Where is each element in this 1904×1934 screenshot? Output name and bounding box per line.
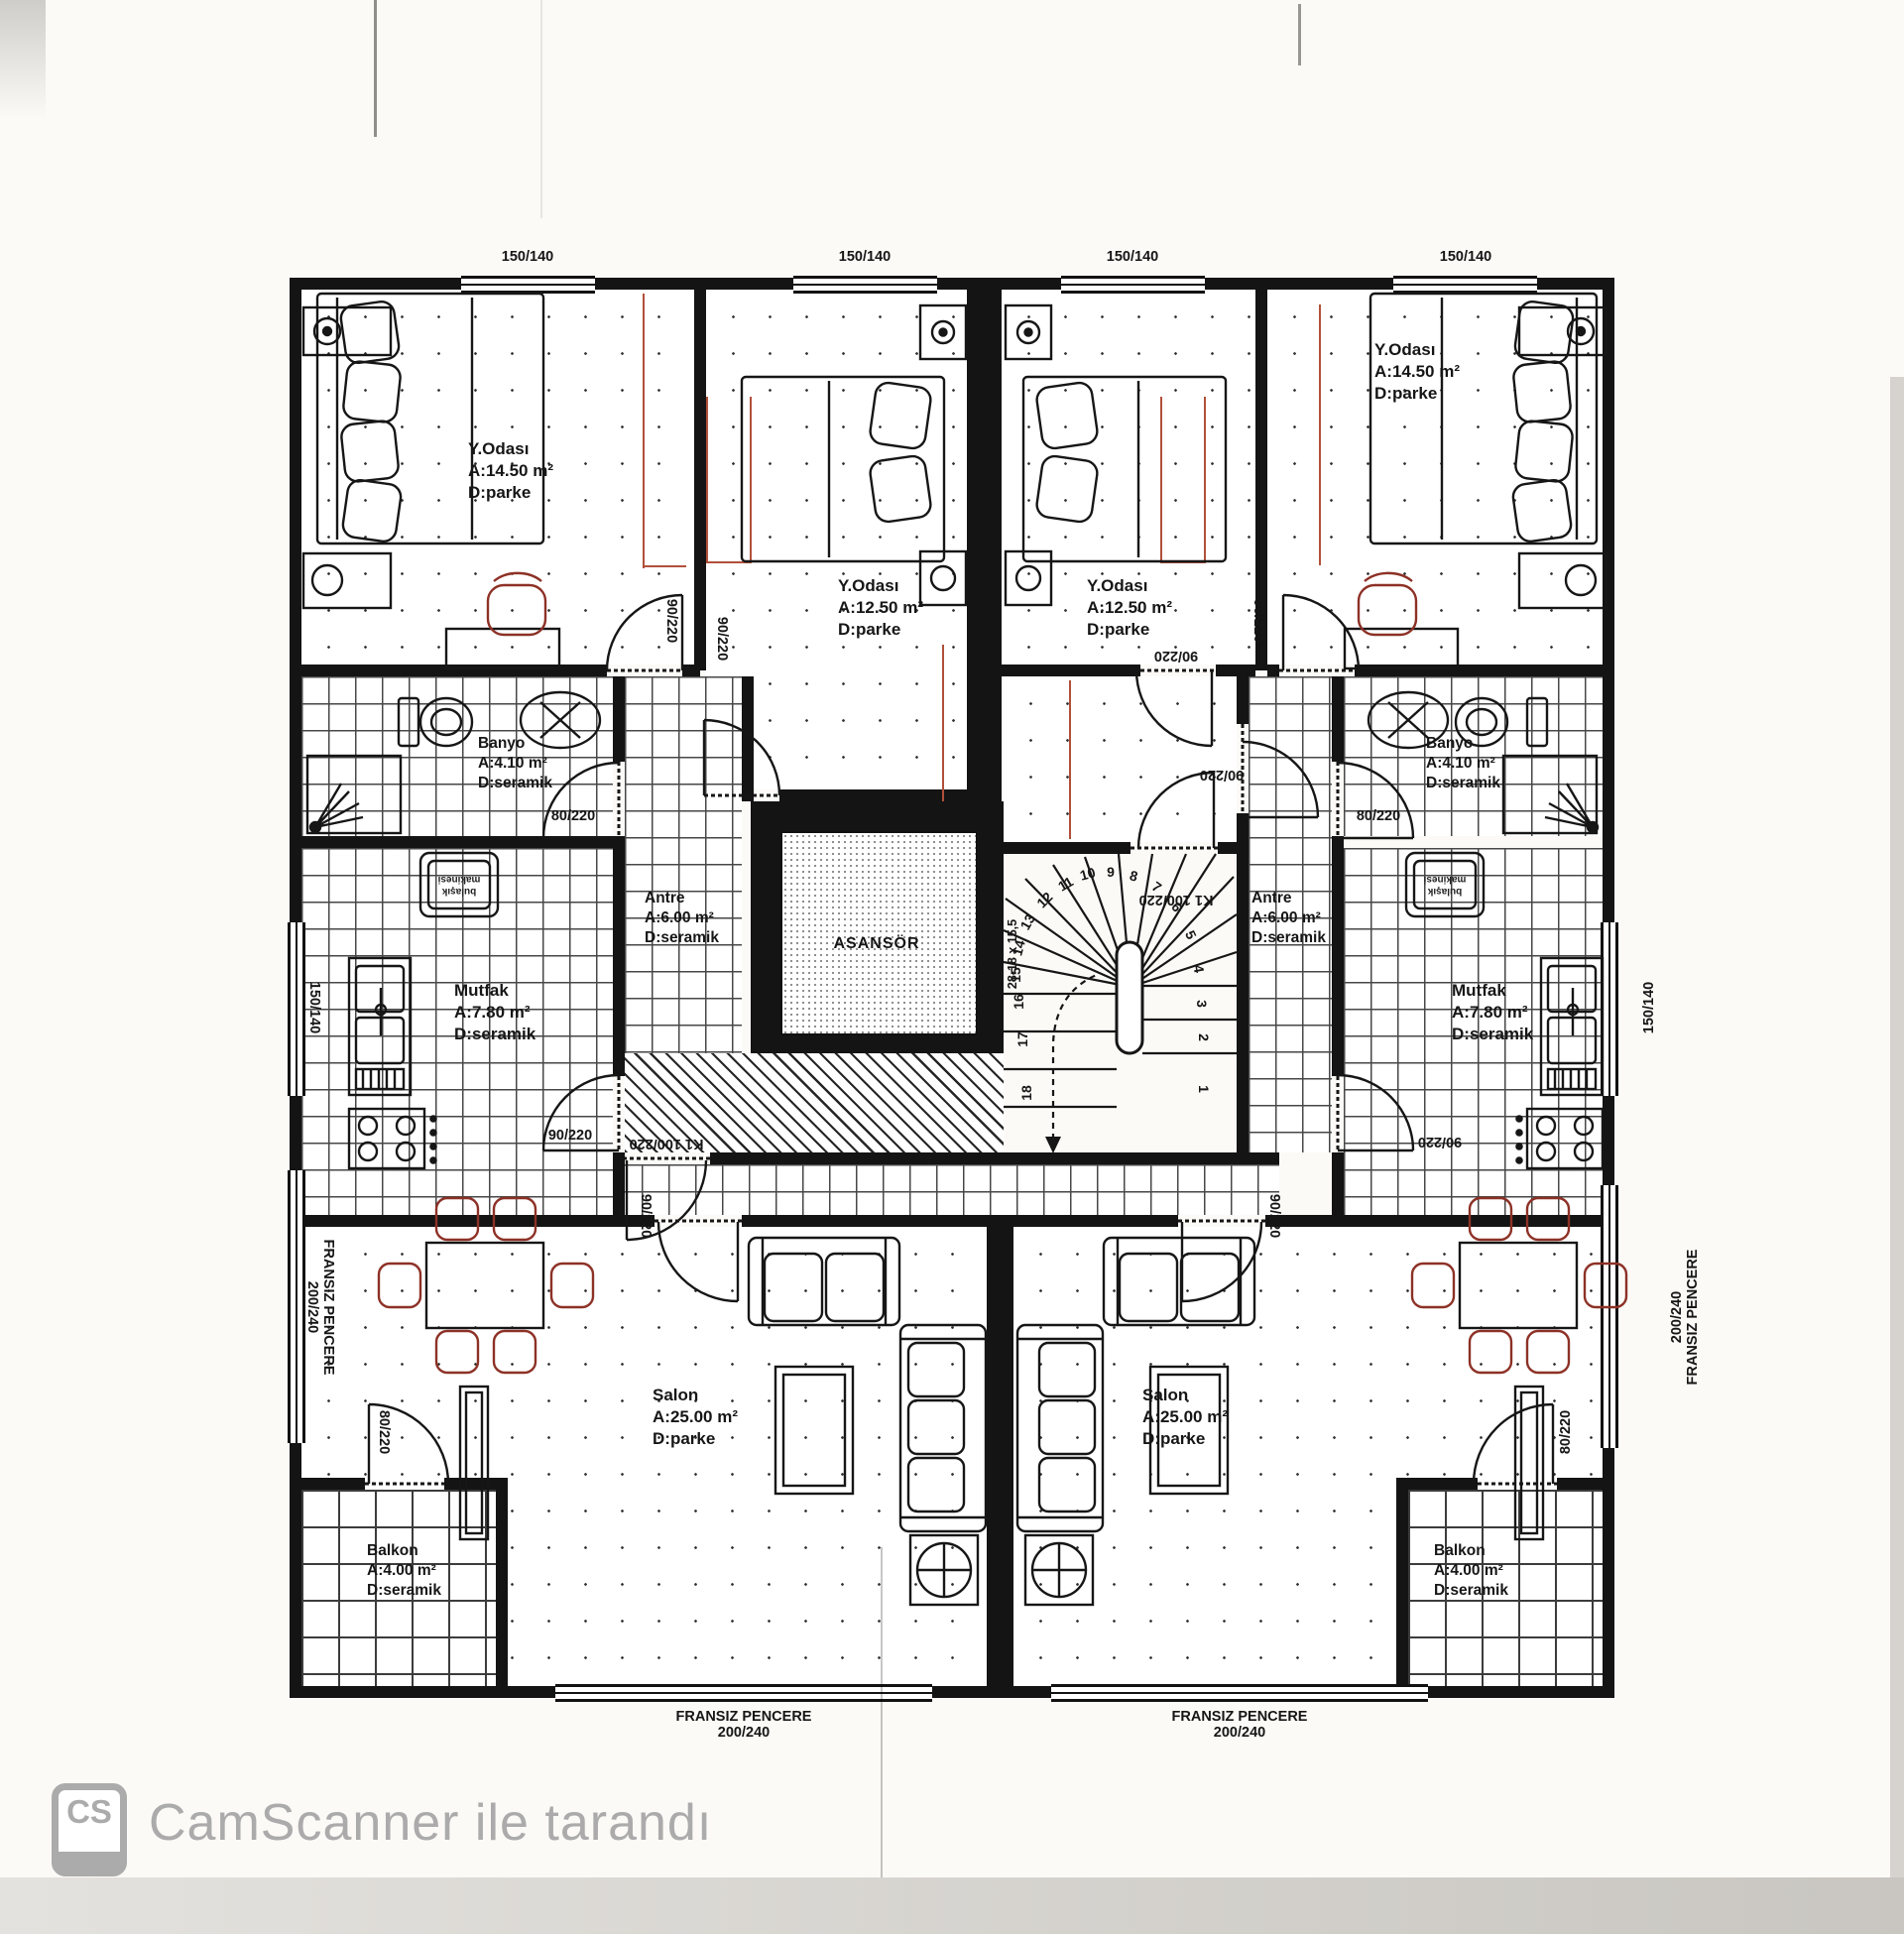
svg-text:11: 11 xyxy=(1055,873,1076,894)
window-dim-br2: 150/140 xyxy=(839,250,891,266)
room-name: Salon xyxy=(653,1385,738,1406)
room-floor: D:seramik xyxy=(1251,928,1326,948)
camscanner-logo-text: CS xyxy=(59,1795,120,1828)
camscanner-logo: CS xyxy=(52,1783,127,1876)
room-floor: D:seramik xyxy=(367,1581,441,1601)
door-dim-kitchen-left: 90/220 xyxy=(548,1129,592,1145)
door-arcs xyxy=(369,595,1553,1484)
room-label-kitchen-left: Mutfak A:7.80 m² D:seramik xyxy=(454,980,535,1044)
room-name: Banyo xyxy=(1426,734,1500,754)
room-area: A:4.10 m² xyxy=(478,754,552,774)
window-dim-kitchen-right: 150/140 xyxy=(1642,982,1658,1033)
window-dim-br1: 150/140 xyxy=(502,250,553,266)
dining-set-left xyxy=(379,1198,593,1373)
room-label-balcony-left: Balkon A:4.00 m² D:seramik xyxy=(367,1541,441,1600)
room-name: Y.Odası xyxy=(468,438,553,460)
door-dim-br1: 90/220 xyxy=(662,599,678,643)
room-label-bath-right: Banyo A:4.10 m² D:seramik xyxy=(1426,734,1500,792)
plan-linework-svg: 1 2 3 4 5 6 7 8 9 10 11 12 13 14 15 16 1… xyxy=(0,0,1904,1934)
dishwasher-label-left: bulaşık makinesi xyxy=(429,873,489,897)
fransiz-pencere-text: FRANSIZ PENCERE xyxy=(319,1240,335,1376)
door-dim-entry-left: K1 100/220 xyxy=(630,1135,704,1150)
door-dim-br3: 90/220 xyxy=(1154,647,1198,663)
room-floor: D:seramik xyxy=(454,1024,535,1045)
room-floor: D:parke xyxy=(1087,619,1172,641)
door-dim-bath-left: 80/220 xyxy=(551,809,595,825)
room-floor: D:seramik xyxy=(1434,1581,1508,1601)
room-name: Banyo xyxy=(478,734,552,754)
room-name: Y.Odası xyxy=(1374,339,1460,361)
room-label-balcony-right: Balkon A:4.00 m² D:seramik xyxy=(1434,1541,1508,1600)
room-name: Salon xyxy=(1142,1385,1228,1406)
stair-note: 28-18 x 15,5 xyxy=(1007,919,1020,989)
window-dim-br4: 150/140 xyxy=(1440,250,1491,266)
camscanner-watermark-text: CamScanner ile tarandı xyxy=(149,1797,712,1849)
room-floor: D:seramik xyxy=(645,928,719,948)
svg-text:9: 9 xyxy=(1107,864,1115,880)
room-floor: D:parke xyxy=(1142,1428,1228,1450)
room-area: A:7.80 m² xyxy=(1452,1002,1533,1024)
window-label-salon-left: FRANSIZ PENCERE 200/240 xyxy=(303,1240,335,1376)
svg-text:3: 3 xyxy=(1194,1000,1210,1008)
room-name: Balkon xyxy=(367,1541,441,1561)
svg-text:4: 4 xyxy=(1190,964,1207,975)
room-name: Balkon xyxy=(1434,1541,1508,1561)
window-dim-kitchen-left: 150/140 xyxy=(305,982,321,1033)
fransiz-pencere-size: 200/240 xyxy=(676,1726,812,1742)
room-floor: D:seramik xyxy=(1426,774,1500,793)
room-area: A:25.00 m² xyxy=(1142,1406,1228,1428)
bed-bedroom-2 xyxy=(742,305,966,605)
room-label-bedroom-4: Y.Odası A:14.50 m² D:parke xyxy=(1374,339,1460,404)
fransiz-pencere-text: FRANSIZ PENCERE xyxy=(676,1710,812,1726)
room-area: A:6.00 m² xyxy=(1251,908,1326,928)
svg-text:10: 10 xyxy=(1078,864,1097,884)
svg-text:8: 8 xyxy=(1128,867,1139,885)
fransiz-pencere-text: FRANSIZ PENCERE xyxy=(1172,1710,1308,1726)
room-area: A:12.50 m² xyxy=(838,597,923,619)
fransiz-pencere-size: 200/240 xyxy=(1172,1726,1308,1742)
room-area: A:4.10 m² xyxy=(1426,754,1500,774)
svg-text:18: 18 xyxy=(1018,1085,1034,1101)
window-label-bottom-right: FRANSIZ PENCERE 200/240 xyxy=(1172,1710,1308,1742)
room-area: A:6.00 m² xyxy=(645,908,719,928)
room-area: A:14.50 m² xyxy=(1374,361,1460,383)
room-floor: D:seramik xyxy=(1452,1024,1533,1045)
elevator-label: ASANSÖR xyxy=(833,935,919,953)
scanned-floor-plan-page: 1 2 3 4 5 6 7 8 9 10 11 12 13 14 15 16 1… xyxy=(0,0,1904,1934)
room-area: A:14.50 m² xyxy=(468,460,553,482)
door-dim-balcony-right: 80/220 xyxy=(1559,1410,1575,1454)
room-floor: D:parke xyxy=(653,1428,738,1450)
svg-text:1: 1 xyxy=(1196,1085,1212,1093)
room-floor: D:parke xyxy=(838,619,923,641)
room-floor: D:parke xyxy=(1374,383,1460,405)
camscanner-logo-bar xyxy=(59,1852,120,1870)
window-label-bottom-left: FRANSIZ PENCERE 200/240 xyxy=(676,1710,812,1742)
door-dim-br4: 90/220 xyxy=(1249,599,1265,643)
bed-bedroom-3 xyxy=(1006,305,1226,605)
fransiz-pencere-size: 200/240 xyxy=(1670,1250,1686,1386)
door-dim-bath-right: 80/220 xyxy=(1357,809,1400,825)
door-dim-salon-left: 90/220 xyxy=(637,1194,653,1238)
room-name: Antre xyxy=(645,889,719,908)
room-area: A:4.00 m² xyxy=(1434,1561,1508,1581)
room-label-bedroom-2: Y.Odası A:12.50 m² D:parke xyxy=(838,575,923,640)
door-dim-entry-right: K1 100/220 xyxy=(1139,891,1214,907)
dishwasher-label-right: bulaşık makinesi xyxy=(1415,873,1475,897)
room-label-bedroom-3: Y.Odası A:12.50 m² D:parke xyxy=(1087,575,1172,640)
room-area: A:7.80 m² xyxy=(454,1002,535,1024)
svg-text:17: 17 xyxy=(1014,1031,1030,1047)
room-name: Y.Odası xyxy=(838,575,923,597)
room-label-bath-left: Banyo A:4.10 m² D:seramik xyxy=(478,734,552,792)
svg-text:2: 2 xyxy=(1196,1033,1212,1041)
room-area: A:4.00 m² xyxy=(367,1561,441,1581)
room-name: Mutfak xyxy=(454,980,535,1002)
room-name: Antre xyxy=(1251,889,1326,908)
room-name: Y.Odası xyxy=(1087,575,1172,597)
door-dim-balcony-left: 80/220 xyxy=(375,1410,391,1454)
fransiz-pencere-size: 200/240 xyxy=(303,1240,319,1376)
window-dim-br3: 150/140 xyxy=(1107,250,1158,266)
door-dim-antre-right: 90/220 xyxy=(1200,766,1244,782)
window-label-salon-right: 200/240 FRANSIZ PENCERE xyxy=(1670,1250,1702,1386)
fransiz-pencere-text: FRANSIZ PENCERE xyxy=(1686,1250,1702,1386)
door-dim-salon-right: 90/220 xyxy=(1265,1194,1281,1238)
dining-set-right xyxy=(1412,1198,1626,1373)
room-floor: D:parke xyxy=(468,482,553,504)
room-area: A:25.00 m² xyxy=(653,1406,738,1428)
door-dim-kitchen-right: 90/220 xyxy=(1418,1133,1462,1148)
room-label-salon-right: Salon A:25.00 m² D:parke xyxy=(1142,1385,1228,1449)
room-floor: D:seramik xyxy=(478,774,552,793)
svg-text:16: 16 xyxy=(1011,994,1026,1010)
room-label-antre-left: Antre A:6.00 m² D:seramik xyxy=(645,889,719,947)
room-label-antre-right: Antre A:6.00 m² D:seramik xyxy=(1251,889,1326,947)
room-label-salon-left: Salon A:25.00 m² D:parke xyxy=(653,1385,738,1449)
room-name: Mutfak xyxy=(1452,980,1533,1002)
room-area: A:12.50 m² xyxy=(1087,597,1172,619)
room-label-kitchen-right: Mutfak A:7.80 m² D:seramik xyxy=(1452,980,1533,1044)
door-dim-br2: 90/220 xyxy=(713,617,729,661)
room-label-bedroom-1: Y.Odası A:14.50 m² D:parke xyxy=(468,438,553,503)
